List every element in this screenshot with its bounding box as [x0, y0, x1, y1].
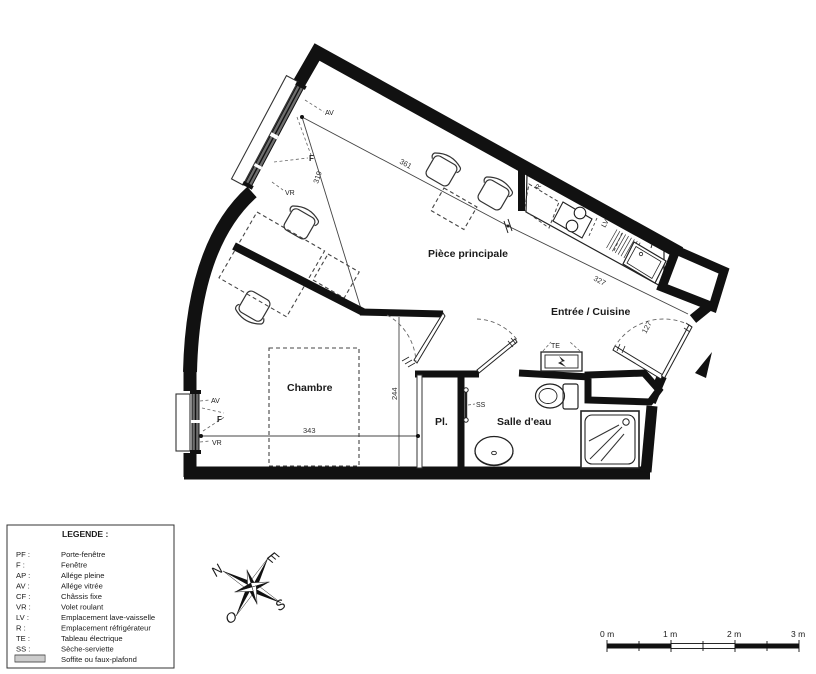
svg-text:TE :: TE : [16, 634, 30, 643]
svg-text:Salle d'eau: Salle d'eau [497, 416, 551, 428]
svg-text:Allége pleine: Allége pleine [61, 571, 105, 580]
svg-text:AV: AV [325, 110, 334, 117]
svg-text:Emplacement réfrigérateur: Emplacement réfrigérateur [61, 624, 151, 633]
svg-text:3 m: 3 m [791, 629, 805, 639]
svg-text:F :: F : [16, 561, 25, 570]
svg-text:R :: R : [16, 624, 26, 633]
svg-text:AP :: AP : [16, 571, 30, 580]
svg-text:PF :: PF : [16, 550, 30, 559]
svg-text:SS: SS [476, 402, 486, 409]
svg-text:CF :: CF : [16, 592, 30, 601]
svg-text:Soffite ou faux-plafond: Soffite ou faux-plafond [61, 655, 137, 664]
svg-text:244: 244 [390, 387, 399, 400]
svg-text:Chambre: Chambre [287, 382, 333, 394]
svg-text:VR :: VR : [16, 603, 31, 612]
svg-text:Pl.: Pl. [435, 416, 448, 428]
svg-text:F: F [217, 415, 222, 424]
svg-text:Tableau électrique: Tableau électrique [61, 634, 123, 643]
svg-text:SS :: SS : [16, 645, 30, 654]
svg-text:Allége vitrée: Allége vitrée [61, 582, 103, 591]
svg-text:Pièce principale: Pièce principale [428, 248, 508, 260]
svg-text:Volet roulant: Volet roulant [61, 603, 104, 612]
svg-text:2 m: 2 m [727, 629, 741, 639]
svg-text:0 m: 0 m [600, 629, 614, 639]
svg-text:AV :: AV : [16, 582, 30, 591]
svg-text:Sèche-serviette: Sèche-serviette [61, 645, 114, 654]
svg-text:1 m: 1 m [663, 629, 677, 639]
svg-text:Châssis fixe: Châssis fixe [61, 592, 102, 601]
svg-text:Entrée / Cuisine: Entrée / Cuisine [551, 306, 631, 318]
svg-text:Emplacement lave-vaisselle: Emplacement lave-vaisselle [61, 613, 155, 622]
svg-text:343: 343 [303, 426, 316, 435]
svg-text:AV: AV [211, 398, 220, 405]
svg-text:VR: VR [285, 190, 295, 197]
svg-text:LEGENDE :: LEGENDE : [62, 529, 108, 539]
svg-text:TE: TE [551, 343, 560, 350]
svg-text:Fenêtre: Fenêtre [61, 561, 87, 570]
svg-text:Porte-fenêtre: Porte-fenêtre [61, 550, 105, 559]
svg-text:F: F [309, 154, 314, 163]
svg-text:VR: VR [212, 440, 222, 447]
svg-text:LV :: LV : [16, 613, 29, 622]
